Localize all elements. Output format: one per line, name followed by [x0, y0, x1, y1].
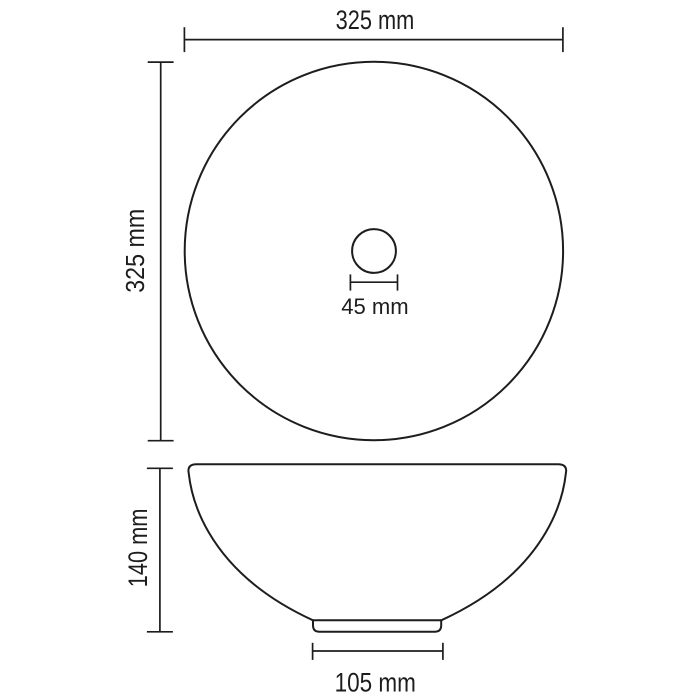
svg-text:325 mm: 325 mm [336, 6, 415, 36]
svg-text:140 mm: 140 mm [124, 509, 153, 588]
svg-text:45 mm: 45 mm [341, 294, 408, 319]
svg-text:325 mm: 325 mm [122, 209, 150, 293]
svg-text:105 mm: 105 mm [335, 669, 416, 698]
